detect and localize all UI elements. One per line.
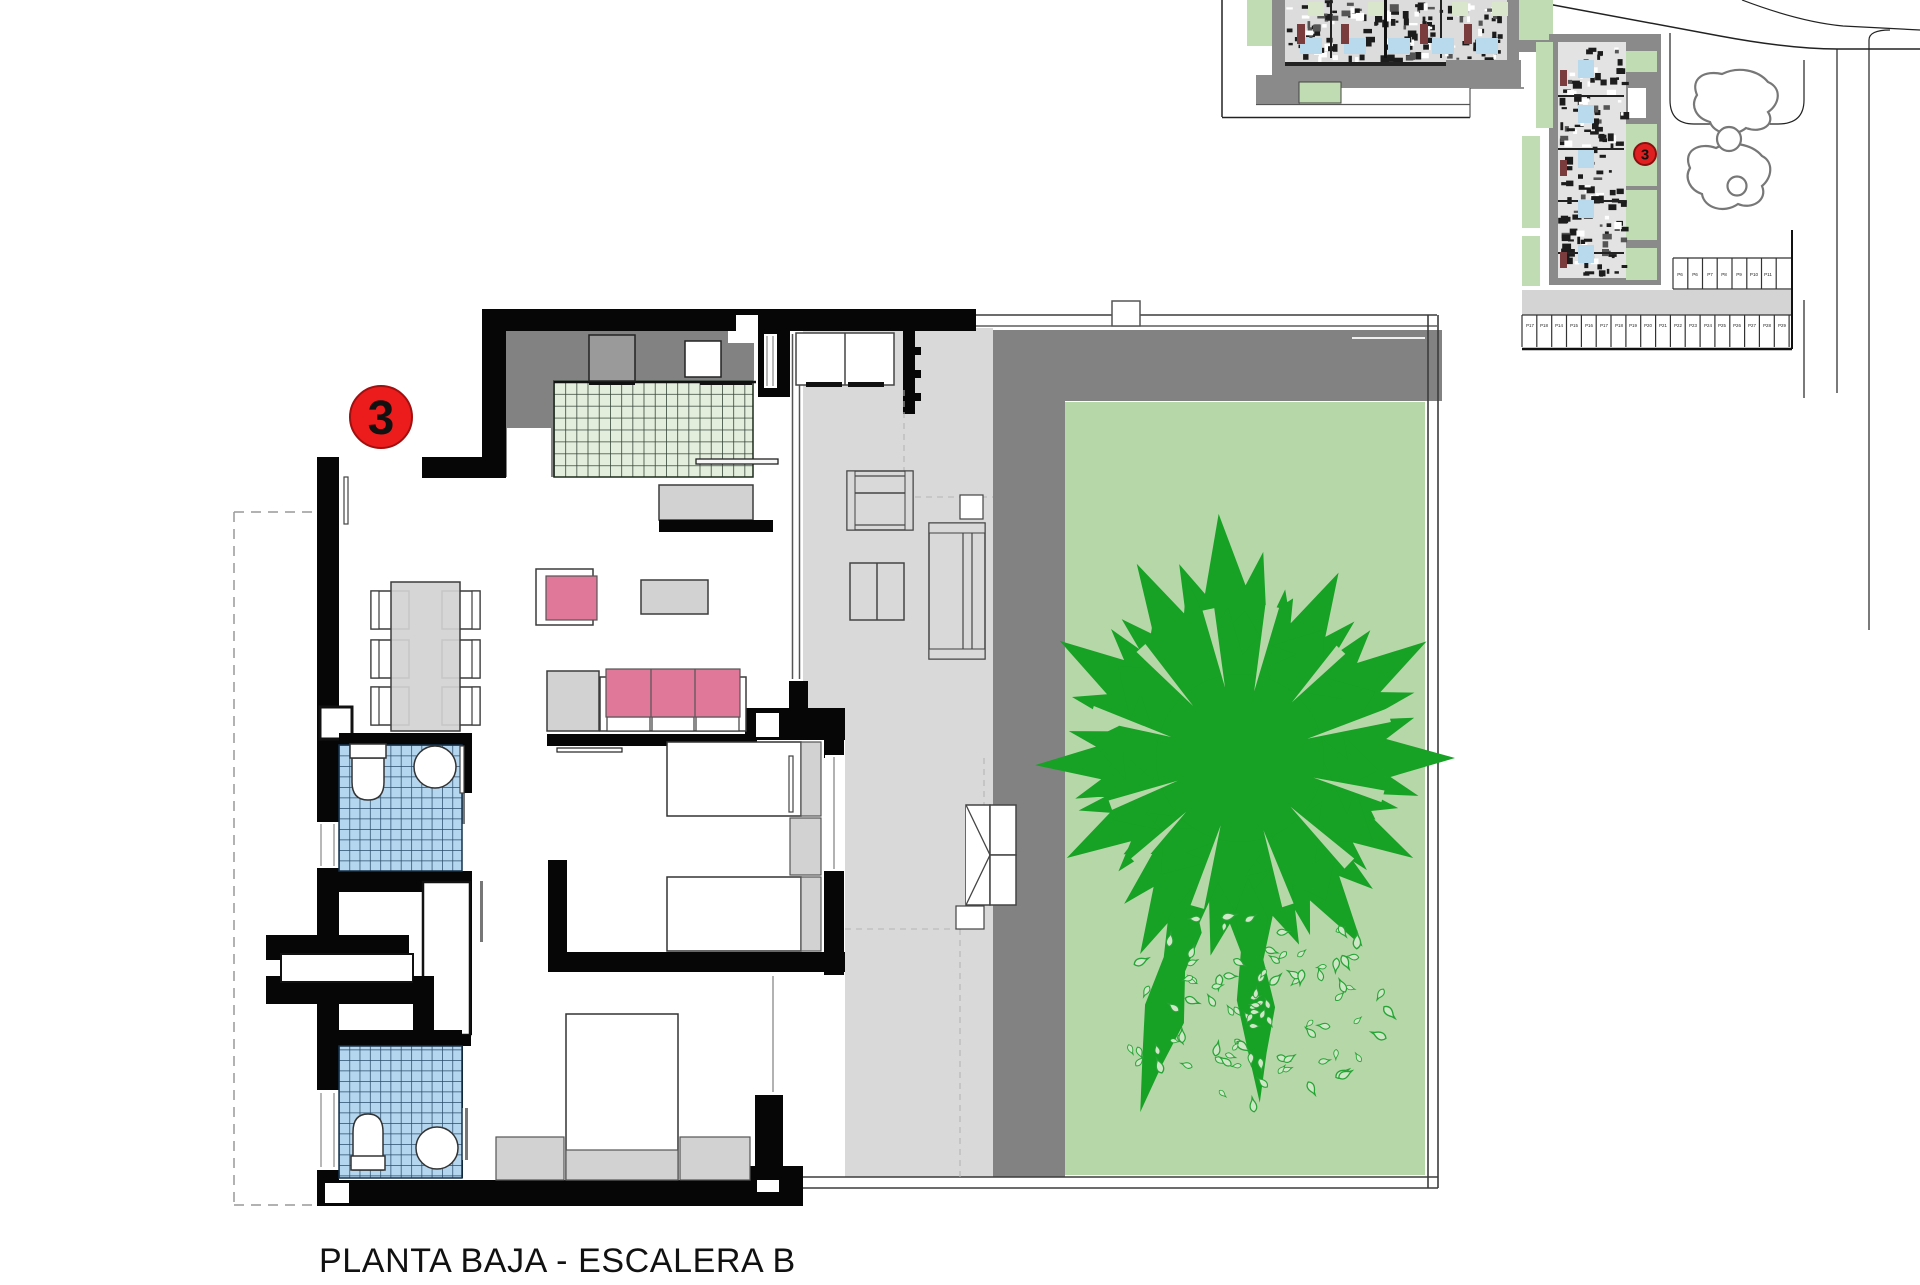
svg-text:P26: P26 [1733, 323, 1741, 328]
svg-text:P11: P11 [1764, 272, 1772, 277]
svg-text:P6: P6 [1692, 272, 1698, 277]
svg-text:P22: P22 [1674, 323, 1682, 328]
svg-text:P17: P17 [1526, 323, 1534, 328]
svg-text:P16: P16 [1585, 323, 1593, 328]
svg-text:P14: P14 [1555, 323, 1563, 328]
svg-text:P23: P23 [1689, 323, 1697, 328]
svg-text:P25: P25 [1718, 323, 1726, 328]
svg-text:P7: P7 [1707, 272, 1713, 277]
svg-text:PLANTA BAJA - ESCALERA B: PLANTA BAJA - ESCALERA B [319, 1242, 796, 1280]
svg-text:P19: P19 [1629, 323, 1637, 328]
svg-text:P8: P8 [1721, 272, 1727, 277]
svg-text:P24: P24 [1704, 323, 1712, 328]
svg-text:P10: P10 [1750, 272, 1759, 277]
svg-text:P18: P18 [1615, 323, 1623, 328]
svg-text:3: 3 [368, 392, 395, 445]
svg-text:P29: P29 [1778, 323, 1786, 328]
svg-text:P20: P20 [1644, 323, 1652, 328]
svg-text:P21: P21 [1659, 323, 1667, 328]
svg-text:P17: P17 [1600, 323, 1608, 328]
svg-text:P28: P28 [1763, 323, 1771, 328]
svg-text:P9: P9 [1736, 272, 1742, 277]
svg-text:3: 3 [1641, 147, 1649, 164]
svg-text:P15: P15 [1570, 323, 1578, 328]
svg-text:P18: P18 [1540, 323, 1548, 328]
svg-text:P6: P6 [1677, 272, 1683, 277]
svg-text:P27: P27 [1748, 323, 1756, 328]
